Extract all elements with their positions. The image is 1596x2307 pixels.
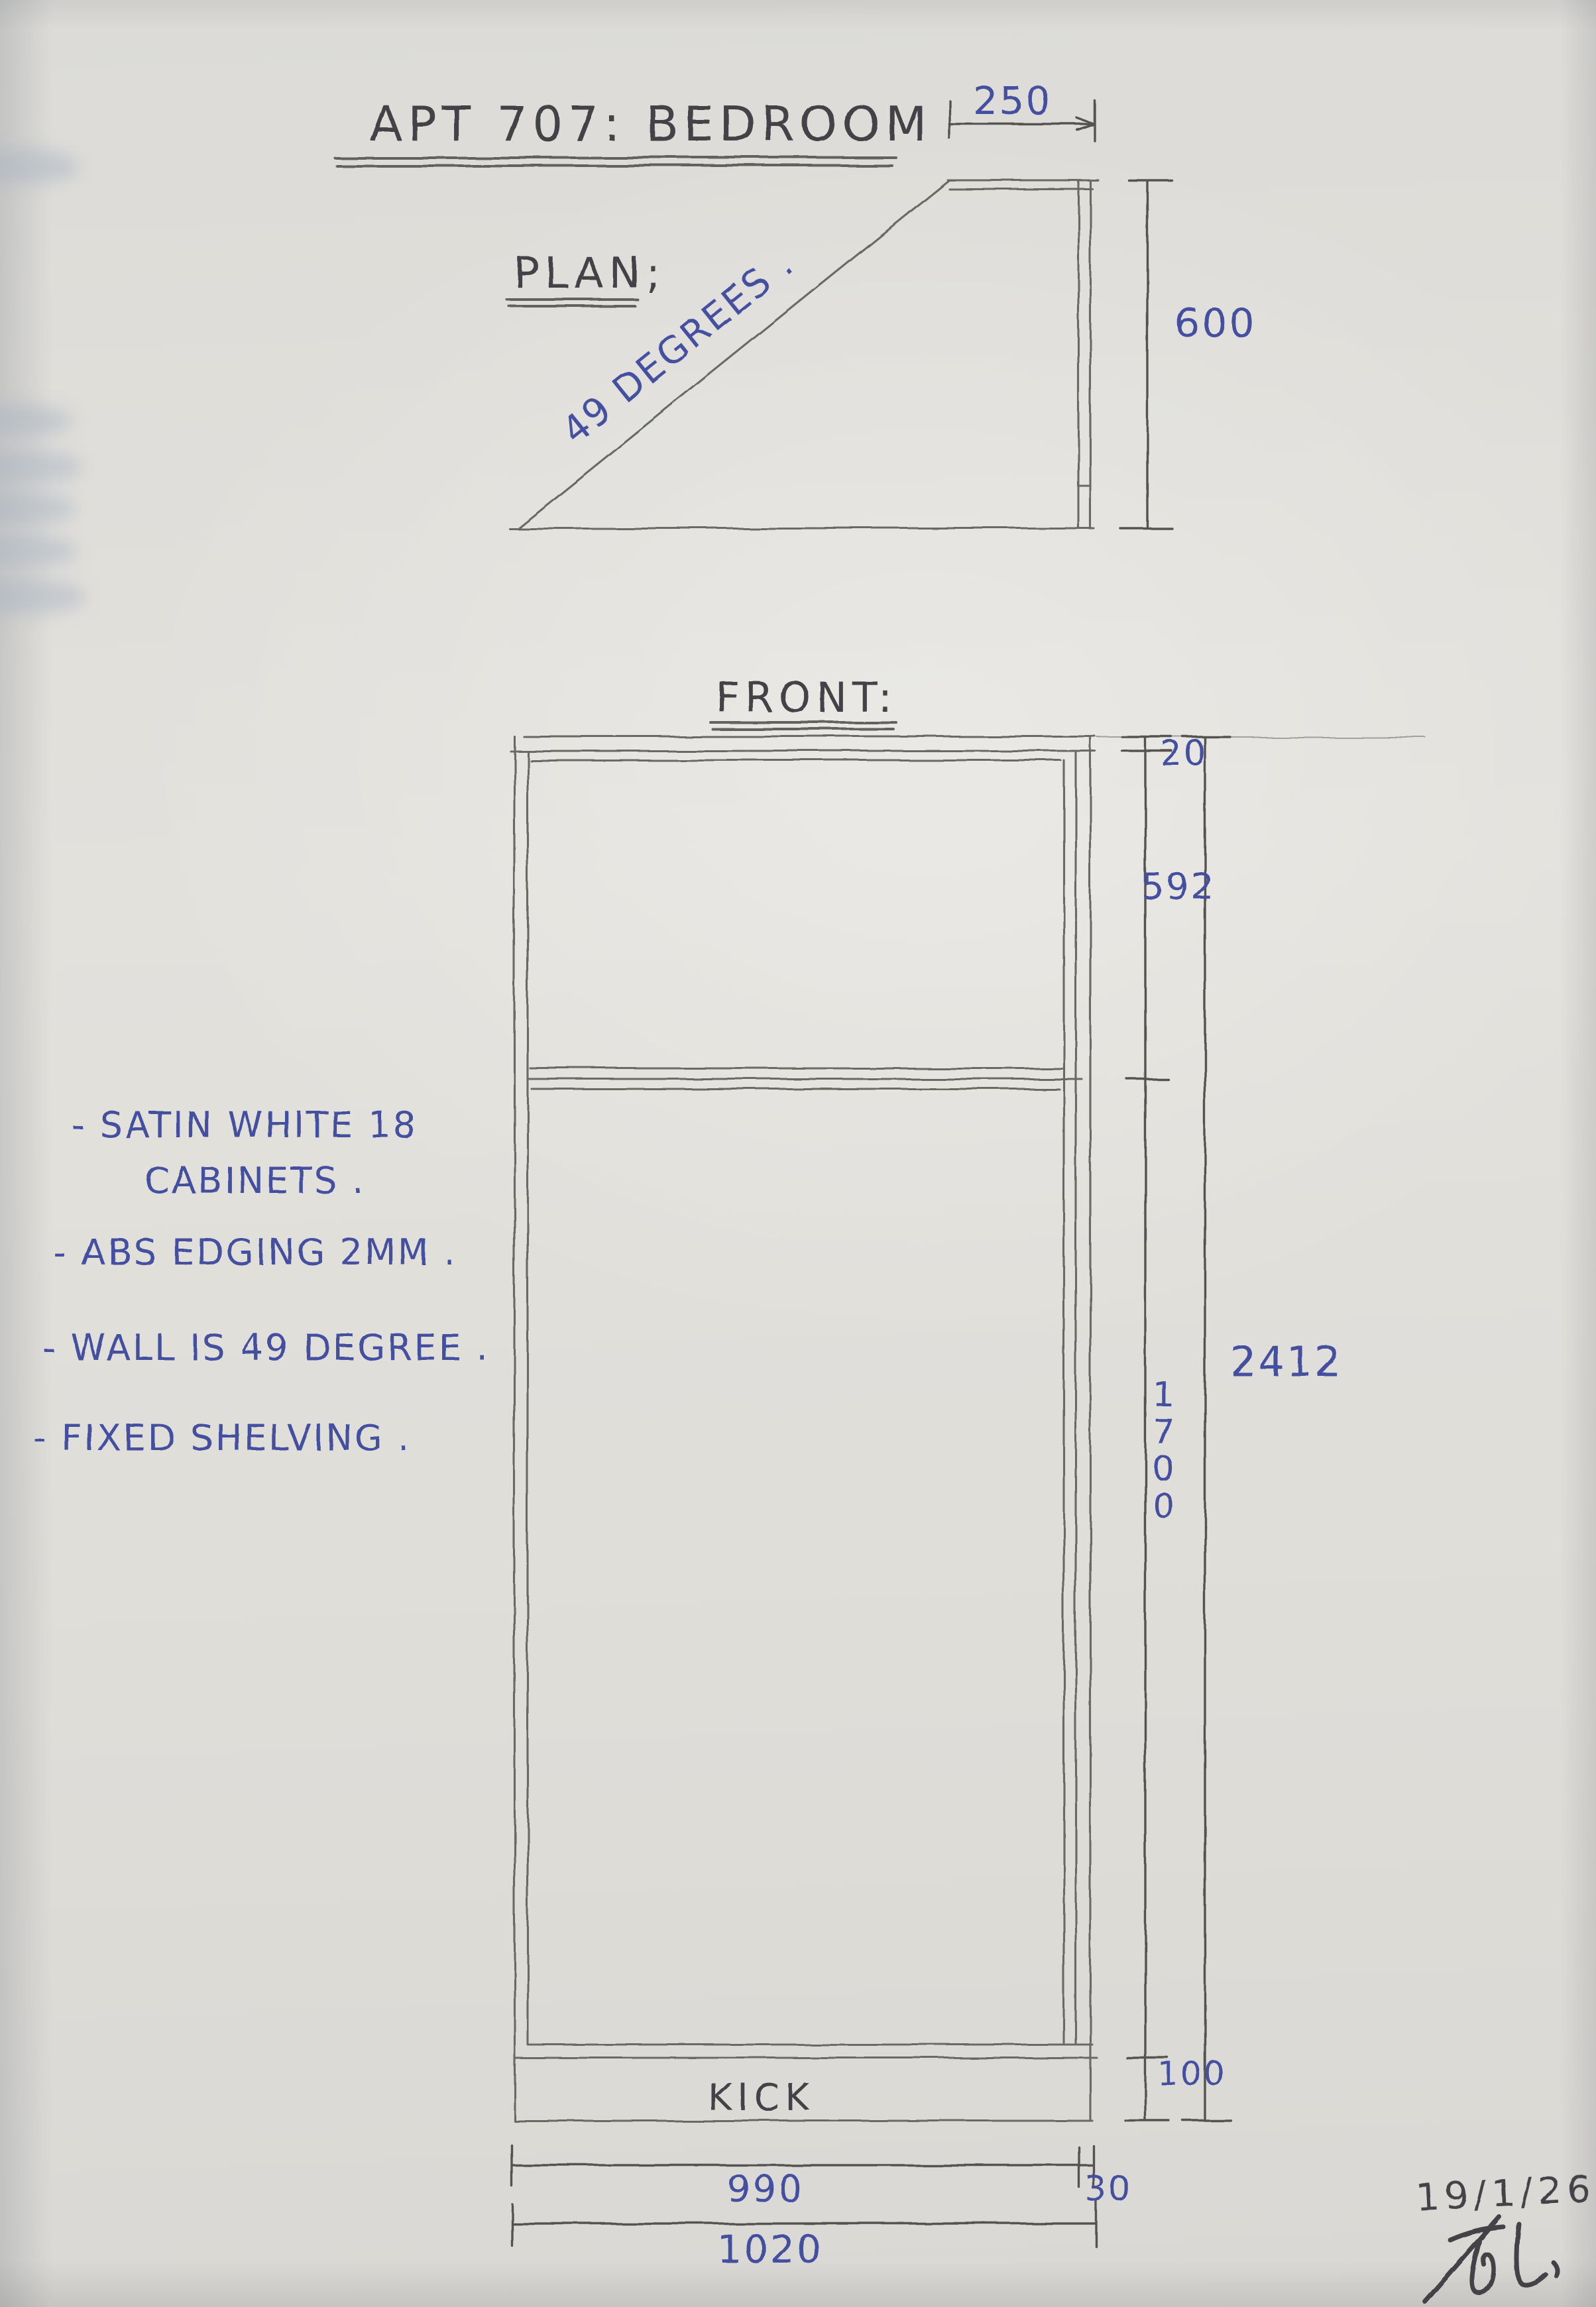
photographed-sketch-page: { "colors":{"paper":"#e1dfda","pencil":"…: [0, 0, 1596, 2307]
front-view-linework: [510, 736, 1425, 2247]
sketch-canvas: APT 707: BEDROOM PLAN; FRONT: KICK 19/1/…: [0, 0, 1596, 2307]
notes-block: - SATIN WHITE 18 CABINETS . - ABS EDGING…: [33, 1104, 490, 1459]
dim-600-label: 600: [1174, 300, 1257, 347]
signature: [1425, 2217, 1558, 2302]
front-underline: [711, 722, 896, 729]
front-cabinet-outline: [510, 736, 1097, 2121]
dim-2412-label: 2412: [1230, 1337, 1343, 1386]
dim-line-600: [1120, 180, 1172, 528]
dim-20-label: 20: [1160, 734, 1208, 773]
dim-990-label: 990: [727, 2168, 804, 2211]
plan-view-linework: [509, 100, 1172, 528]
dim-100-label: 100: [1157, 2054, 1226, 2093]
page-title: APT 707: BEDROOM: [370, 96, 932, 152]
note-fixed-shelving: - FIXED SHELVING .: [33, 1417, 411, 1459]
signature-stroke: [1554, 2263, 1558, 2276]
dim-1020-label: 1020: [717, 2227, 823, 2272]
plan-underline: [507, 300, 638, 306]
date-label: 19/1/26: [1415, 2167, 1596, 2220]
dim-30-label: 30: [1084, 2169, 1132, 2209]
signature-stroke: [1472, 2241, 1493, 2292]
signature-stroke: [1517, 2224, 1546, 2285]
note-wall-angle: - WALL IS 49 DEGREE .: [42, 1327, 490, 1369]
kick-label: KICK: [708, 2076, 815, 2119]
dim-1700-label: 1700: [1153, 1375, 1176, 1526]
note-satin-white: - SATIN WHITE 18: [72, 1104, 418, 1146]
note-abs-edging: - ABS EDGING 2MM .: [53, 1231, 457, 1273]
signature-stroke: [1450, 2227, 1503, 2240]
plan-label: PLAN;: [514, 249, 665, 298]
note-cabinets: CABINETS .: [144, 1160, 366, 1202]
dim-250-label: 250: [973, 78, 1053, 123]
plan-outline: [509, 180, 1098, 528]
dim-line-2412: [1183, 737, 1231, 2121]
dim-592-label: 592: [1141, 866, 1216, 907]
front-label: FRONT:: [716, 673, 897, 722]
title-underline: [335, 158, 896, 166]
